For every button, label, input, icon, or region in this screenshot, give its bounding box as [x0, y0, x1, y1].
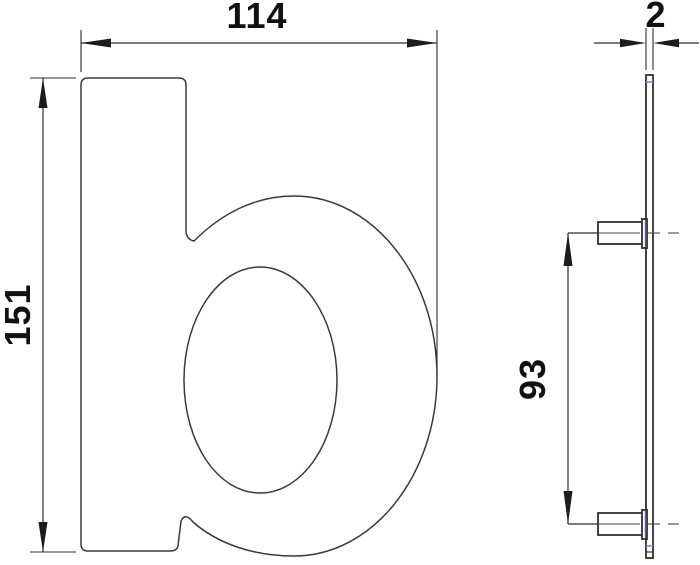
width-arrow-left [81, 39, 111, 48]
thickness-dimension-label: 2 [645, 0, 666, 35]
width-dimension-label: 114 [226, 0, 287, 36]
drawing-canvas: 114 151 [0, 0, 700, 565]
dimension-drawing: 114 151 [0, 0, 700, 565]
thickness-arrow-left [620, 39, 646, 47]
thickness-dimension: 2 [594, 0, 699, 70]
bottom-stud [589, 510, 679, 539]
stud-spacing-dimension-label: 93 [512, 358, 553, 400]
height-dimension-label: 151 [0, 283, 38, 346]
height-arrow-bottom [39, 522, 48, 552]
stud-spacing-dimension: 93 [512, 233, 598, 524]
height-arrow-top [39, 78, 48, 108]
height-dimension: 151 [0, 78, 76, 552]
top-stud [589, 219, 679, 248]
spacing-arrow-top [564, 233, 573, 266]
spacing-arrow-bottom [564, 491, 573, 524]
front-view: 114 151 [0, 0, 437, 556]
thickness-arrow-right [653, 39, 679, 47]
letter-b-outline [81, 78, 437, 556]
side-view: 2 93 [512, 0, 699, 558]
width-arrow-right [407, 39, 437, 48]
plate-profile [646, 75, 653, 558]
